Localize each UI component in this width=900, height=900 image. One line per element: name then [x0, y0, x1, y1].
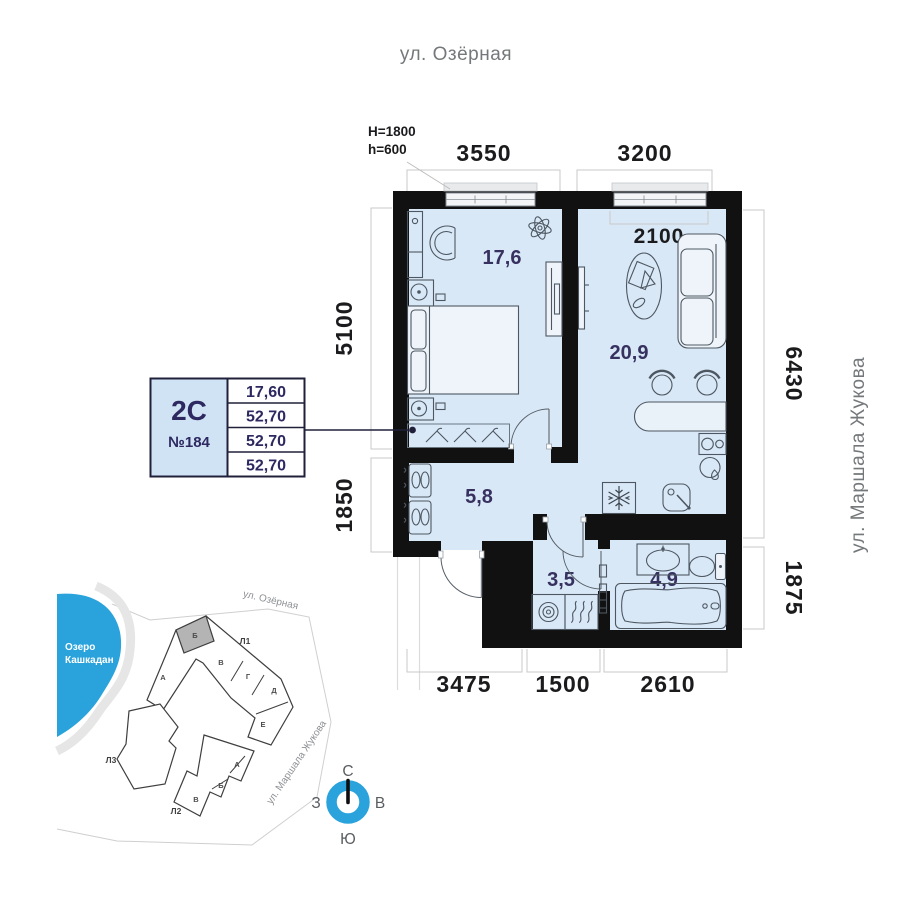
plan-type-label: 2С	[171, 395, 207, 426]
info-card-anchor-dot	[409, 427, 416, 434]
wall-laundry-bath-stub	[598, 540, 610, 549]
area-hall: 5,8	[465, 486, 493, 508]
building-l2: Л2 А Б В	[171, 735, 254, 816]
sofa	[678, 234, 726, 348]
card-area-row-3: 52,70	[246, 433, 286, 450]
card-area-row-2: 52,70	[246, 409, 286, 426]
dim-inner-2100: 2100	[634, 225, 685, 248]
apartment-number: №184	[168, 434, 210, 451]
dim-left-2: 1850	[331, 477, 357, 532]
compass: С Ю З В	[311, 763, 385, 848]
street-label-top: ул. Озёрная	[400, 44, 512, 65]
area-living: 20,9	[610, 342, 649, 364]
window-note-leader	[407, 162, 450, 189]
dim-bottom-2: 1500	[535, 671, 590, 697]
l2-section-b: Б	[218, 781, 224, 790]
wall-entry-block	[482, 541, 533, 648]
card-area-row-4: 52,70	[246, 458, 286, 475]
area-laundry: 3,5	[547, 569, 575, 591]
wall-divider	[562, 209, 578, 463]
bar-counter	[635, 402, 727, 431]
dim-right-1: 6430	[781, 346, 807, 401]
wall-bedroom-bottom-stub	[551, 447, 578, 463]
wall-entry-stub	[393, 541, 441, 557]
dim-top-1: 3550	[456, 140, 511, 166]
l1-section-b: Б	[192, 631, 198, 640]
l2-section-v: В	[193, 795, 199, 804]
site-minimap: Озеро Кашкадан ул. Озёрная ул. Маршала Ж…	[57, 586, 331, 845]
plan-canvas: ул. Озёрная ул. Маршала Жукова	[0, 0, 900, 900]
dim-right-2: 1875	[781, 560, 807, 615]
wall-left	[393, 191, 409, 557]
bed	[408, 306, 519, 394]
building-l3-label: Л3	[106, 755, 117, 765]
wall-bedroom-bottom	[409, 447, 514, 463]
window-2	[612, 183, 708, 206]
entry-door-arc	[441, 557, 482, 598]
window-height-note: H=1800	[368, 124, 416, 139]
l1-section-d: Д	[271, 686, 277, 695]
dim-left-1: 5100	[331, 300, 357, 355]
tv-unit	[546, 262, 562, 336]
window-sill-note: h=600	[368, 142, 407, 157]
minimap-street-top: ул. Озёрная	[242, 589, 299, 612]
area-bath: 4,9	[650, 569, 678, 591]
l2-section-a: А	[234, 760, 240, 769]
window-sill	[612, 183, 708, 191]
lake-label-line2: Кашкадан	[65, 655, 114, 666]
l1-section-a: А	[160, 673, 166, 682]
card-area-row-1: 17,60	[246, 384, 286, 401]
building-l1-label: Л1	[240, 636, 251, 646]
compass-east-label: В	[375, 795, 385, 812]
l1-section-v: В	[218, 658, 224, 667]
building-l2-label: Л2	[171, 806, 182, 816]
compass-north-label: С	[342, 763, 353, 780]
dim-top-2: 3200	[617, 140, 672, 166]
l1-section-e: Е	[260, 720, 265, 729]
info-card-type-cell	[151, 379, 228, 477]
dim-bottom-3: 2610	[640, 671, 695, 697]
window-1	[444, 183, 537, 206]
building-l3: Л3	[106, 704, 178, 789]
window-sill	[444, 183, 537, 191]
l1-section-g: Г	[246, 672, 251, 681]
wall-kitchen-bath	[585, 514, 726, 540]
dim-bottom-1: 3475	[436, 671, 491, 697]
wall-right	[726, 191, 742, 648]
exterior-lines	[398, 557, 420, 690]
area-bedroom: 17,6	[483, 247, 522, 269]
compass-south-label: Ю	[340, 831, 356, 848]
info-card: 2С №184 17,60 52,70 52,70 52,70	[151, 379, 416, 477]
floorplan-page: { "streets": { "top": "ул. Озёрная", "ri…	[0, 0, 900, 900]
street-label-right: ул. Маршала Жукова	[848, 357, 869, 553]
compass-west-label: З	[311, 795, 320, 812]
lake-label-line1: Озеро	[65, 642, 95, 653]
